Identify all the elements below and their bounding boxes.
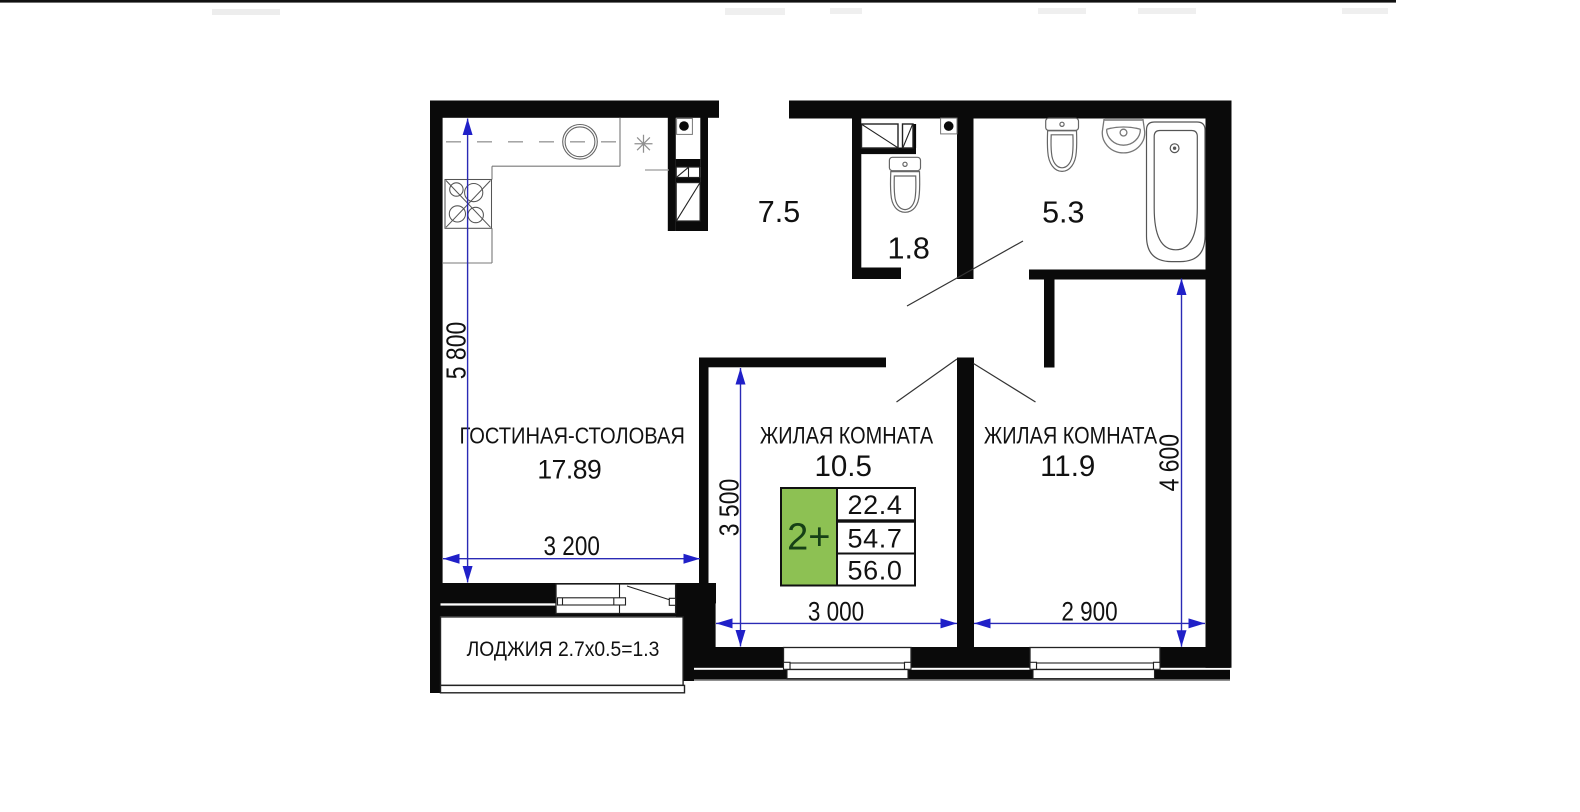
svg-text:3 000: 3 000	[808, 598, 864, 627]
svg-text:3 500: 3 500	[715, 479, 746, 536]
svg-text:7.5: 7.5	[758, 195, 800, 229]
svg-text:ЛОДЖИЯ 2.7x0.5=1.3: ЛОДЖИЯ 2.7x0.5=1.3	[467, 638, 660, 661]
svg-text:1.8: 1.8	[887, 232, 929, 266]
svg-text:4 600: 4 600	[1155, 434, 1186, 491]
svg-text:ГОСТИНАЯ-СТОЛОВАЯ: ГОСТИНАЯ-СТОЛОВАЯ	[459, 422, 684, 449]
svg-text:5 800: 5 800	[442, 322, 473, 379]
svg-text:2 900: 2 900	[1061, 598, 1117, 627]
svg-text:22.4: 22.4	[848, 490, 903, 520]
svg-text:11.9: 11.9	[1040, 450, 1095, 483]
svg-text:17.89: 17.89	[537, 455, 601, 485]
svg-text:10.5: 10.5	[814, 450, 871, 483]
svg-text:54.7: 54.7	[848, 524, 903, 554]
svg-text:3 200: 3 200	[544, 532, 600, 561]
svg-text:56.0: 56.0	[848, 556, 903, 586]
svg-text:ЖИЛАЯ КОМНАТА: ЖИЛАЯ КОМНАТА	[760, 422, 934, 449]
svg-text:2+: 2+	[787, 517, 830, 559]
svg-text:ЖИЛАЯ КОМНАТА: ЖИЛАЯ КОМНАТА	[984, 422, 1158, 449]
svg-text:5.3: 5.3	[1042, 195, 1084, 229]
